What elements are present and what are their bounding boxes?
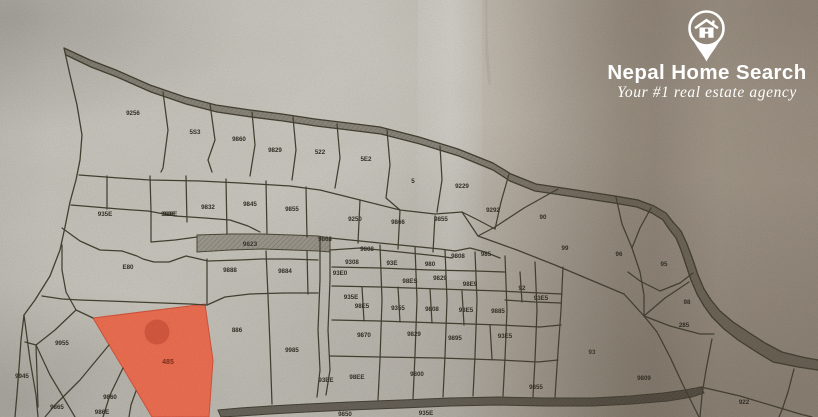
svg-text:9855: 9855 <box>434 216 448 223</box>
svg-text:285: 285 <box>679 322 690 329</box>
svg-text:92: 92 <box>519 285 526 292</box>
svg-text:9809: 9809 <box>637 375 651 382</box>
svg-text:986E: 986E <box>95 409 109 416</box>
svg-text:9829: 9829 <box>433 275 447 282</box>
svg-text:9250: 9250 <box>348 216 362 223</box>
svg-text:9832: 9832 <box>201 204 215 211</box>
svg-text:9860: 9860 <box>103 394 117 401</box>
svg-text:9829: 9829 <box>268 147 282 154</box>
svg-text:9292: 9292 <box>486 207 500 214</box>
svg-text:9866: 9866 <box>391 219 405 226</box>
svg-text:9985: 9985 <box>285 347 299 354</box>
svg-text:9256: 9256 <box>126 110 140 117</box>
svg-text:98: 98 <box>684 299 691 306</box>
svg-text:9850: 9850 <box>338 411 352 417</box>
svg-text:98ES: 98ES <box>402 278 417 285</box>
svg-text:93EE: 93EE <box>318 377 333 384</box>
svg-text:9865: 9865 <box>50 404 64 411</box>
svg-text:9845: 9845 <box>243 201 257 208</box>
svg-text:935E: 935E <box>98 211 112 218</box>
svg-text:9888: 9888 <box>223 267 237 274</box>
svg-text:5: 5 <box>411 178 415 185</box>
svg-text:9229: 9229 <box>455 183 469 190</box>
svg-text:935E: 935E <box>419 410 433 417</box>
svg-text:9800: 9800 <box>410 371 424 378</box>
svg-text:9808: 9808 <box>451 253 465 260</box>
svg-text:93E5: 93E5 <box>534 295 549 302</box>
svg-text:98E5: 98E5 <box>355 303 370 310</box>
svg-text:Nepal Home Search: Nepal Home Search <box>607 61 806 84</box>
svg-text:9895: 9895 <box>448 335 462 342</box>
svg-text:E80: E80 <box>122 264 134 271</box>
svg-text:93E: 93E <box>386 260 397 267</box>
svg-text:9808: 9808 <box>425 306 439 313</box>
svg-text:98E9: 98E9 <box>463 281 478 288</box>
svg-text:988E: 988E <box>163 211 177 218</box>
svg-text:980: 980 <box>425 261 436 268</box>
svg-text:886: 886 <box>232 327 243 334</box>
svg-text:9855: 9855 <box>529 384 543 391</box>
svg-text:9308: 9308 <box>345 259 359 266</box>
svg-text:9855: 9855 <box>285 206 299 213</box>
svg-text:9955: 9955 <box>55 340 69 347</box>
svg-text:935E: 935E <box>344 294 358 301</box>
svg-text:93: 93 <box>589 349 596 356</box>
svg-text:985: 985 <box>481 251 492 258</box>
svg-text:922: 922 <box>739 399 750 406</box>
svg-text:93E5: 93E5 <box>459 307 474 314</box>
svg-text:99: 99 <box>562 245 569 252</box>
svg-text:9808: 9808 <box>360 246 374 253</box>
svg-text:93E0: 93E0 <box>333 270 348 277</box>
svg-text:9870: 9870 <box>357 332 371 339</box>
svg-text:Your #1 real estate agency: Your #1 real estate agency <box>617 84 797 101</box>
svg-text:9355: 9355 <box>391 305 405 312</box>
svg-text:9884: 9884 <box>278 268 292 275</box>
svg-text:9885: 9885 <box>491 308 505 315</box>
svg-text:5E2: 5E2 <box>360 156 372 163</box>
svg-text:95: 95 <box>661 261 668 268</box>
svg-text:9860: 9860 <box>232 136 246 143</box>
svg-text:522: 522 <box>315 149 326 156</box>
svg-text:93E5: 93E5 <box>498 333 513 340</box>
svg-text:9868: 9868 <box>318 236 332 243</box>
svg-text:5S3: 5S3 <box>189 129 201 136</box>
svg-text:9945: 9945 <box>15 373 29 380</box>
svg-text:96: 96 <box>616 251 623 258</box>
svg-text:9829: 9829 <box>407 331 421 338</box>
svg-text:98EE: 98EE <box>349 374 364 381</box>
svg-text:90: 90 <box>540 214 547 221</box>
